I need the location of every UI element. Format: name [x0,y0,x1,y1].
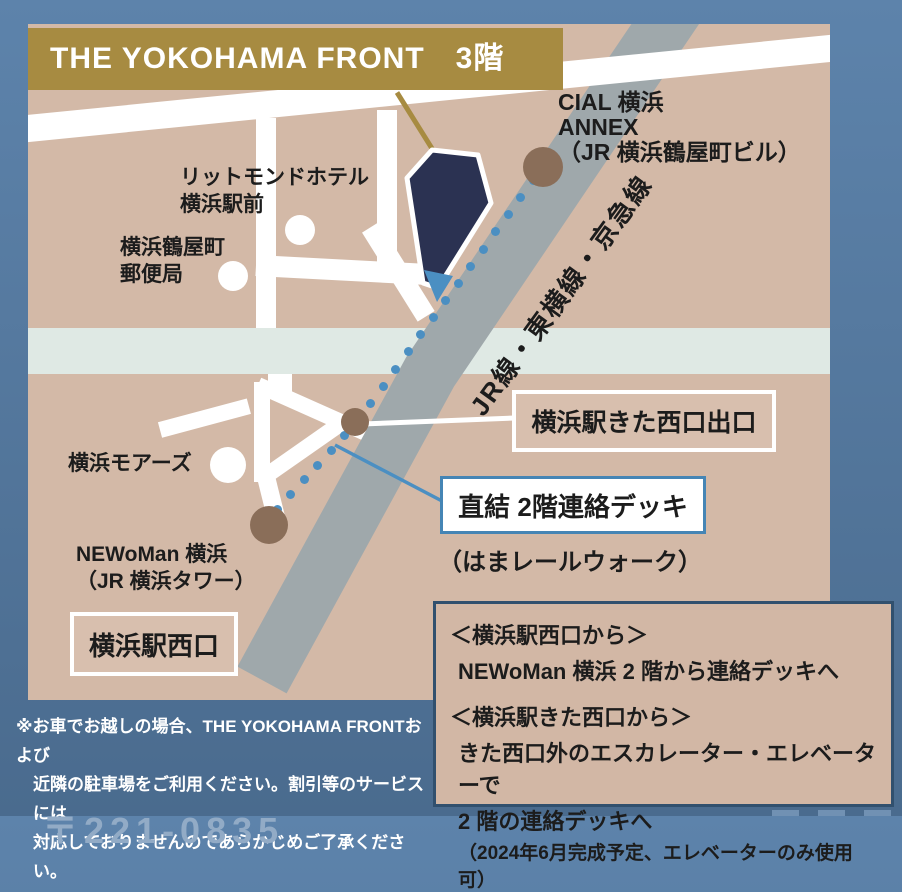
info-line-kita-2: 2 階の連絡デッキへ [458,804,877,836]
postal-code-partial: 〒221-0835 [42,802,284,854]
route-dot [429,313,438,322]
route-dot [441,296,450,305]
decor-square [864,810,891,816]
decor-square [772,810,799,816]
route-dot [313,461,322,470]
map-canvas: JR線・東横線・京急線 リットモンドホテル 横浜駅前 横浜鶴屋町 郵便局 CIA… [28,24,830,700]
route-dot [404,347,413,356]
car-note-line-1: ※お車でお越しの場合、THE YOKOHAMA FRONTおよび [16,712,436,770]
label-hotel: リットモンドホテル 横浜駅前 [180,164,369,218]
info-heading-west: ＜横浜駅西口から＞ [450,618,877,650]
route-dot [379,382,388,391]
access-info-box: ＜横浜駅西口から＞ NEWoMan 横浜 2 階から連絡デッキへ ＜横浜駅きた西… [433,601,894,807]
route-dot [454,279,463,288]
title-banner: THE YOKOHAMA FRONT 3階 [28,28,563,90]
info-line-kita-1: きた西口外のエスカレーター・エレベーターで [458,736,877,800]
route-dot [366,399,375,408]
label-post-office: 横浜鶴屋町 郵便局 [120,234,225,288]
car-note: ※お車でお越しの場合、THE YOKOHAMA FRONTおよび 近隣の駐車場を… [16,712,436,886]
deck-box: 直結 2階連絡デッキ [440,476,706,534]
label-moas: 横浜モアーズ [68,450,192,477]
route-dot [300,475,309,484]
route-dot [479,245,488,254]
marker-cial-annex [523,147,563,187]
info-line-west: NEWoMan 横浜 2 階から連絡デッキへ [458,654,877,686]
route-dot [504,210,513,219]
marker-kita-west-exit [341,408,369,436]
info-heading-kita-west: ＜横浜駅きた西口から＞ [450,700,877,732]
marker-hotel [285,215,315,245]
label-newoman: NEWoMan 横浜 （JR 横浜タワー） [76,541,256,595]
route-dot [391,365,400,374]
label-cial-annex: CIAL 横浜 ANNEX （JR 横浜鶴屋町ビル） [558,90,801,165]
route-dot [466,262,475,271]
west-exit-box: 横浜駅西口 [70,612,238,676]
hama-rail-walk-label: （はまレールウォーク） [438,542,702,577]
decor-square [818,810,845,816]
route-dot [491,227,500,236]
route-dot [516,193,525,202]
route-dot [416,330,425,339]
route-dot [327,446,336,455]
marker-moas [210,447,246,483]
route-dot [286,490,295,499]
info-line-note: （2024年6月完成予定、エレベーターのみ使用可） [458,838,877,892]
kita-west-exit-box: 横浜駅きた西口出口 [512,390,776,452]
marker-newoman [250,506,288,544]
